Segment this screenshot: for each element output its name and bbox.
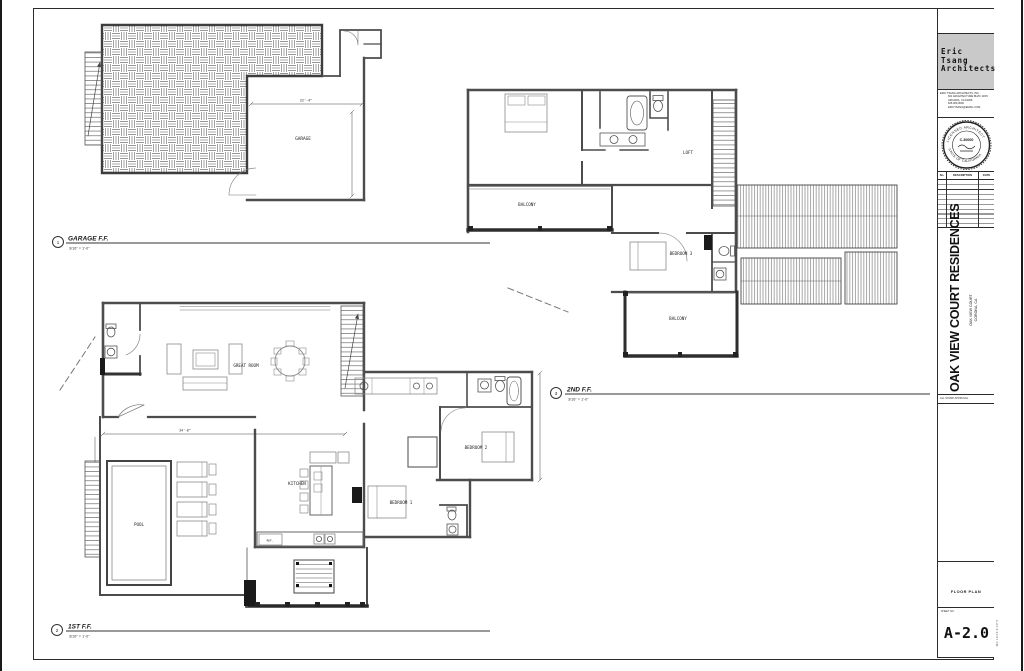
pocket-door <box>704 235 712 250</box>
plan-title: GARAGE F.F. <box>68 236 109 243</box>
ref-label: REF. <box>267 539 274 543</box>
great-room-furniture <box>167 344 242 390</box>
loft-label: LOFT <box>683 150 694 155</box>
drawing-sheet: 22'-4" GARAGE <box>0 0 1024 671</box>
project-address-line: CORONA, CA <box>974 238 979 382</box>
bedroom3-label: BEDROOM 3 <box>670 251 693 256</box>
bedroom3-bed <box>630 242 666 270</box>
revision-table-rows <box>938 180 994 228</box>
plan-scale: 3/16" = 1'-0" <box>69 247 90 251</box>
spa-slats <box>294 560 334 593</box>
bedroom2-label: BEDROOM 2 <box>465 445 488 450</box>
pool-label: POOL <box>134 522 145 527</box>
garage-width-dim: 22'-4" <box>300 99 312 103</box>
kitchen-group <box>257 452 363 546</box>
powder-room-fixtures <box>105 324 140 358</box>
wall-fill <box>100 358 105 375</box>
sink-icon <box>610 136 618 144</box>
sink-icon <box>629 136 637 144</box>
sheet-title: FLOOR PLAN <box>937 562 994 608</box>
master-bed <box>505 94 547 132</box>
stamp-license-number: C-30000 <box>960 138 974 142</box>
svg-text:STATE OF CALIFORNIA: STATE OF CALIFORNIA <box>947 148 982 163</box>
second-floor-stair <box>713 100 735 206</box>
first-floor-dim: 34'-8" <box>179 429 191 433</box>
sink-icon <box>449 526 456 533</box>
first-floor-dimensions <box>95 371 542 482</box>
bedroom-bath-fixtures <box>447 507 458 535</box>
bedroom3-door-arc <box>659 233 687 261</box>
entry-door <box>118 405 144 417</box>
lounge-chairs <box>177 462 216 536</box>
stamp-signature <box>958 145 975 151</box>
sink-icon <box>481 381 489 389</box>
sheet-number: A-2.0 <box>938 624 995 642</box>
plan-title: 1ST F.F. <box>68 624 92 631</box>
deck-area <box>244 548 367 607</box>
sink-icon <box>107 348 115 356</box>
first-floor-plan: 34'-8" GREAT ROOM KITCHEN REF. POOL BEDR… <box>60 303 542 607</box>
toilet-icon <box>719 247 729 256</box>
toilet-icon <box>654 101 663 112</box>
rear-balcony <box>623 291 738 357</box>
garage-plan: 22'-4" GARAGE <box>85 25 381 200</box>
revision-table: No. DESCRIPTION DATE <box>937 172 994 228</box>
pocket-door <box>352 487 362 503</box>
double-vanity <box>600 133 645 146</box>
plan-title: 2ND F.F. <box>566 387 592 394</box>
rev-col-date: DATE <box>979 172 994 179</box>
floor-plan-drawings: 22'-4" GARAGE <box>0 0 1024 671</box>
laundry-cabinets <box>355 378 437 394</box>
trellis-hatch <box>102 25 322 173</box>
kitchen-label: KITCHEN <box>288 481 306 486</box>
titleblock-empty-box <box>937 404 994 562</box>
approval-note: ALL STAMP APPROVAL <box>937 395 994 404</box>
firm-info: ERIC TSANG ARCHITECTS, INC. 601 ARCHITEC… <box>937 90 994 118</box>
second-floor-plan: LOFT BALCONY BEDROOM 3 BALCONY <box>468 90 897 357</box>
front-balcony-label: BALCONY <box>518 202 536 207</box>
master-bath-fixtures <box>600 96 663 147</box>
burner-icon <box>327 536 332 541</box>
great-room-label: GREAT ROOM <box>233 363 259 368</box>
match-line <box>508 288 568 312</box>
logo-line: Architects <box>941 65 994 74</box>
project-address: OAK VIEW COURT CORONA, CA <box>969 238 979 382</box>
hall-bath-fixtures <box>441 377 521 432</box>
second-bath-fixtures <box>714 246 735 280</box>
architect-stamp: LICENSED ARCHITECT STATE OF CALIFORNIA C… <box>937 118 994 172</box>
exterior-stair <box>85 461 100 557</box>
garage-dimensions <box>249 102 364 198</box>
rev-col-description: DESCRIPTION <box>947 172 979 179</box>
plan-title-second: 3 2ND F.F. 3/16" = 1'-0" <box>551 387 931 402</box>
project-title: OAK VIEW COURT RESIDENCES <box>948 228 964 392</box>
plot-stamp: 6-24 2:41:07 PM <box>995 620 999 647</box>
toilet-icon <box>496 381 505 392</box>
pocket-door <box>244 580 256 606</box>
match-line <box>60 337 95 390</box>
plan-title-garage: 1 GARAGE F.F. 3/16" = 1'-0" <box>53 236 491 251</box>
pool-area <box>85 461 216 585</box>
revision-table-header: No. DESCRIPTION DATE <box>938 172 994 180</box>
dining-table <box>271 341 309 381</box>
plan-scale: 3/16" = 1'-0" <box>69 635 90 639</box>
garage-room-label: GARAGE <box>295 136 311 142</box>
titleblock-top-box <box>937 8 994 34</box>
sheet-number-label: SHEET NO. <box>941 610 954 613</box>
detail-number: 2 <box>56 628 59 633</box>
sink-icon <box>716 270 724 278</box>
plan-title-first: 2 1ST F.F. 3/16" = 1'-0" <box>52 624 491 639</box>
plan-scale: 3/16" = 1'-0" <box>568 398 589 402</box>
firm-info-line: ERICTSANG@EMAIL.COM <box>940 106 994 109</box>
detail-number: 1 <box>57 240 60 245</box>
bedroom1-label: BEDROOM 1 <box>390 500 413 505</box>
architect-logo: Eric Tsang Architects <box>937 34 994 90</box>
project-title-box <box>937 228 994 395</box>
rev-col-no: No. <box>938 172 947 179</box>
detail-number: 3 <box>555 391 558 396</box>
burner-icon <box>316 536 321 541</box>
sheet-number-box: SHEET NO. A-2.0 <box>937 608 994 658</box>
closet <box>408 437 437 467</box>
first-floor-stair <box>341 306 363 396</box>
stamp-bottom-text: STATE OF CALIFORNIA <box>947 148 982 163</box>
roof-hatch <box>737 185 897 304</box>
toilet-icon <box>448 510 456 520</box>
front-balcony <box>468 186 612 231</box>
bathtub-icon <box>631 101 644 125</box>
rear-balcony-label: BALCONY <box>669 316 687 321</box>
second-floor-walls <box>468 90 736 292</box>
